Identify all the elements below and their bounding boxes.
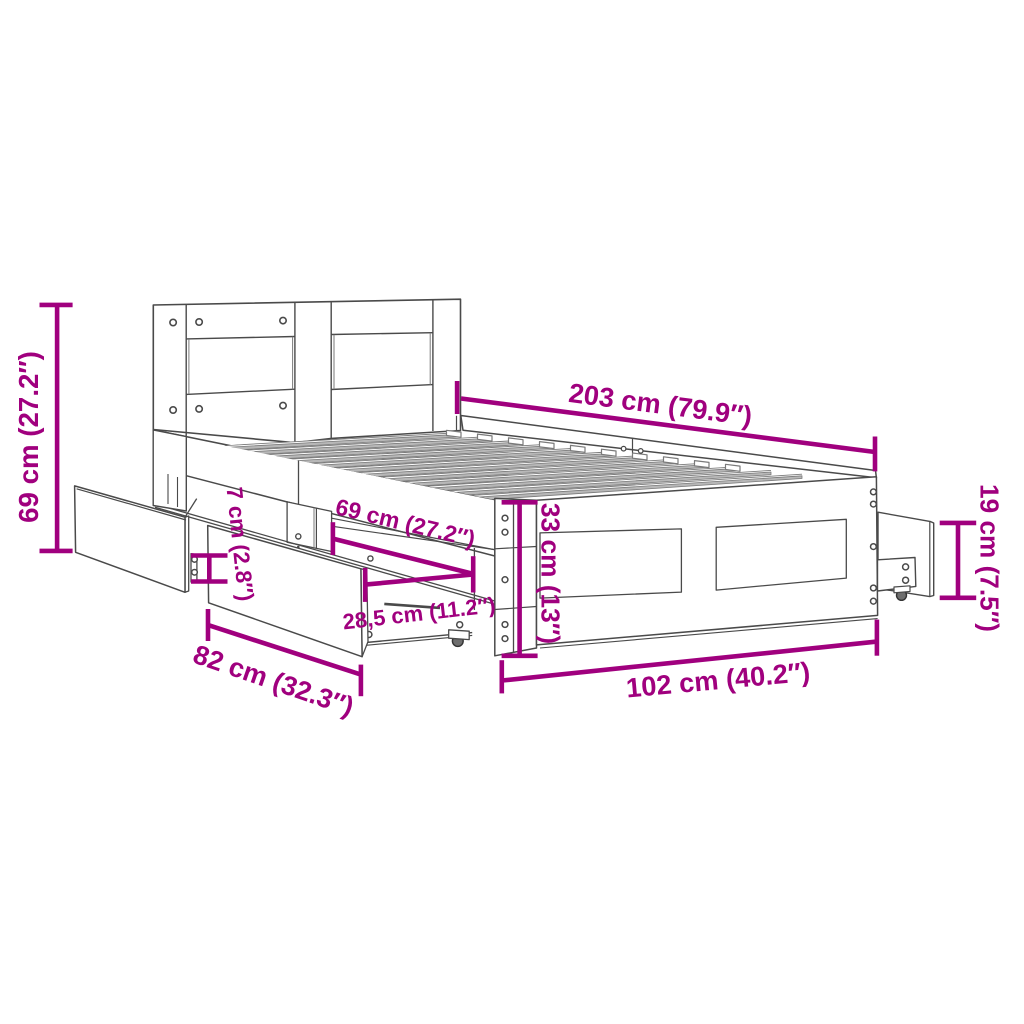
svg-text:69 cm (27.2″): 69 cm (27.2″)	[13, 351, 44, 523]
svg-text:33 cm (13″): 33 cm (13″)	[536, 503, 566, 644]
svg-text:19 cm (7.5″): 19 cm (7.5″)	[975, 484, 1005, 632]
